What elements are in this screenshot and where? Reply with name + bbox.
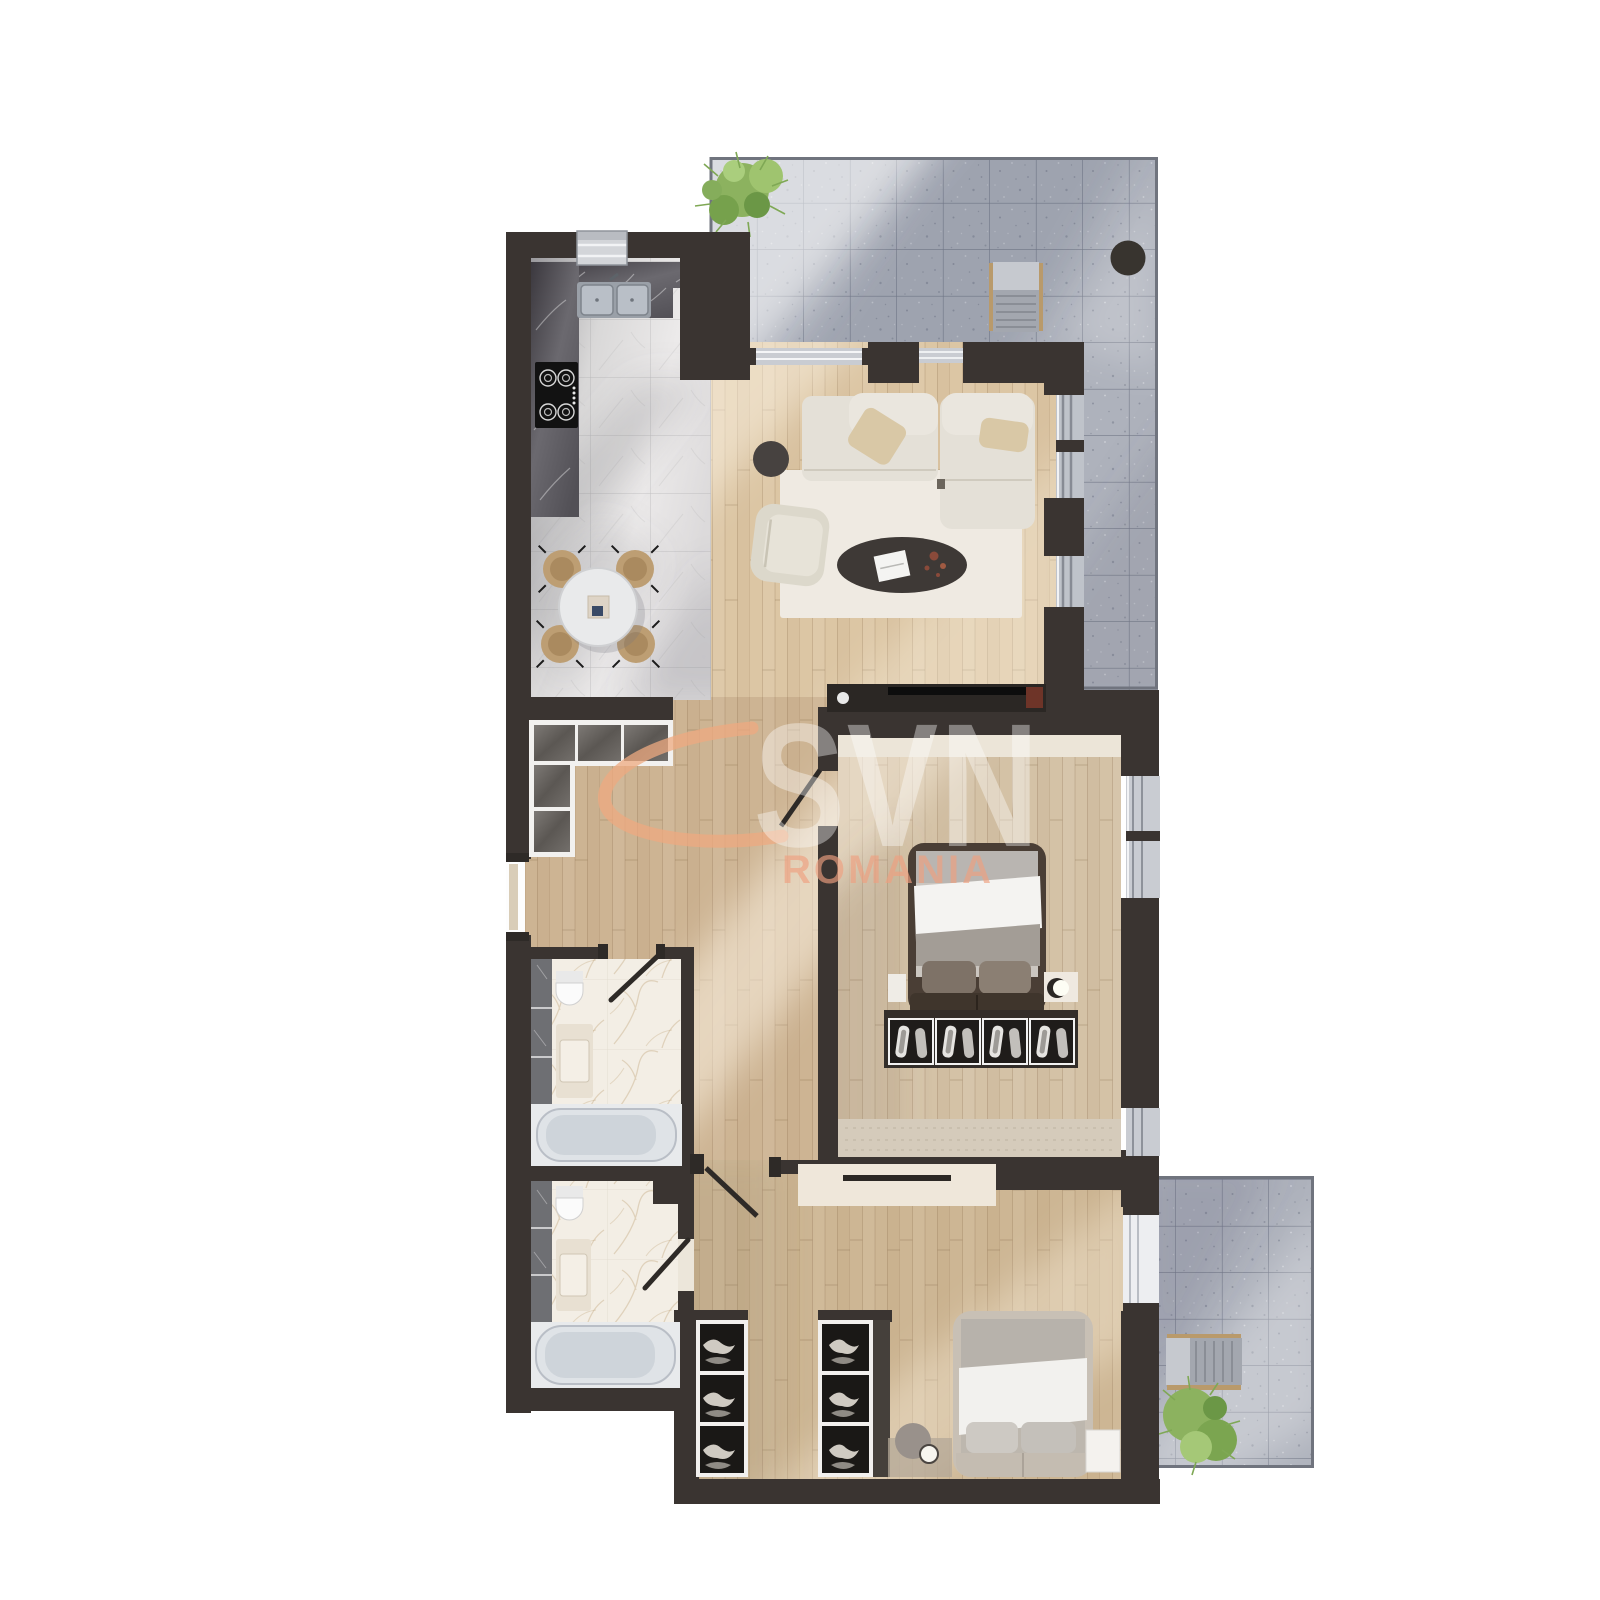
svg-text:ROMANIA: ROMANIA	[782, 848, 994, 892]
